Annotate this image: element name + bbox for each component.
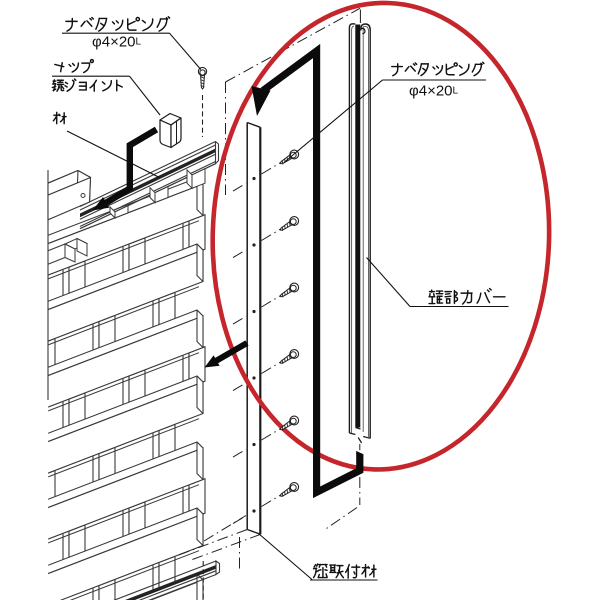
svg-text:φ4×20L: φ4×20L xyxy=(92,34,142,51)
svg-text:φ4×20L: φ4×20L xyxy=(409,83,459,100)
